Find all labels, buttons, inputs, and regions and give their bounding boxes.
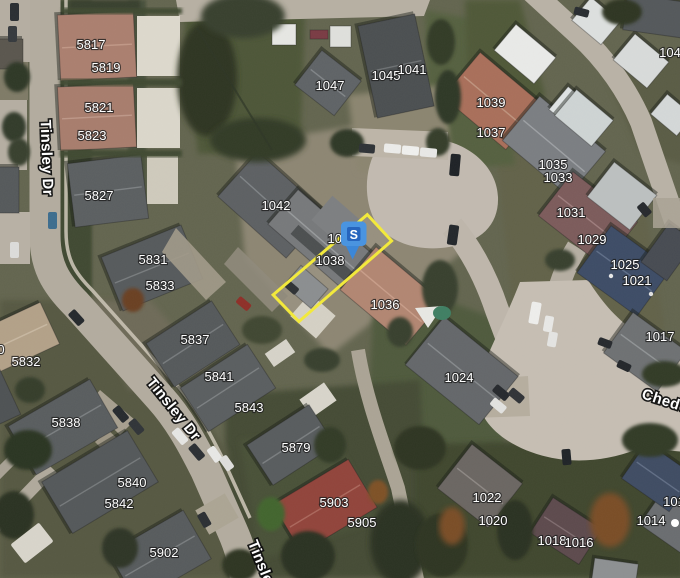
svg-text:5819: 5819 [92, 60, 121, 75]
svg-text:5842: 5842 [105, 496, 134, 511]
svg-text:1047: 1047 [316, 78, 345, 93]
svg-text:1033: 1033 [544, 170, 573, 185]
svg-text:5843: 5843 [235, 400, 264, 415]
svg-text:5838: 5838 [52, 415, 81, 430]
svg-text:1020: 1020 [479, 513, 508, 528]
svg-text:5902: 5902 [150, 545, 179, 560]
svg-text:5832: 5832 [12, 354, 41, 369]
svg-text:1038: 1038 [316, 253, 345, 268]
svg-text:1016: 1016 [565, 535, 594, 550]
svg-text:5821: 5821 [85, 100, 114, 115]
svg-text:101: 101 [663, 494, 680, 509]
svg-text:5827: 5827 [85, 188, 114, 203]
svg-text:1039: 1039 [477, 95, 506, 110]
svg-text:1031: 1031 [557, 205, 586, 220]
svg-text:1025: 1025 [611, 257, 640, 272]
svg-text:1017: 1017 [646, 329, 675, 344]
svg-text:1042: 1042 [262, 198, 291, 213]
svg-text:5905: 5905 [348, 515, 377, 530]
svg-text:5840: 5840 [118, 475, 147, 490]
svg-text:5817: 5817 [77, 37, 106, 52]
svg-text:5903: 5903 [320, 495, 349, 510]
svg-text:Tinsley Dr: Tinsley Dr [37, 119, 57, 196]
svg-text:104: 104 [659, 45, 680, 60]
svg-text:1021: 1021 [623, 273, 652, 288]
svg-text:1024: 1024 [445, 370, 474, 385]
svg-text:1037: 1037 [477, 125, 506, 140]
svg-text:0: 0 [0, 342, 5, 357]
svg-text:5841: 5841 [205, 369, 234, 384]
svg-text:5833: 5833 [146, 278, 175, 293]
svg-text:5831: 5831 [139, 252, 168, 267]
svg-text:1041: 1041 [398, 62, 427, 77]
svg-text:5823: 5823 [78, 128, 107, 143]
svg-text:1018: 1018 [538, 533, 567, 548]
svg-text:1045: 1045 [372, 68, 401, 83]
svg-text:1022: 1022 [473, 490, 502, 505]
svg-text:S: S [350, 228, 358, 242]
svg-text:5879: 5879 [282, 440, 311, 455]
svg-text:5837: 5837 [181, 332, 210, 347]
svg-text:1014: 1014 [637, 513, 666, 528]
svg-text:1029: 1029 [578, 232, 607, 247]
svg-text:1036: 1036 [371, 297, 400, 312]
